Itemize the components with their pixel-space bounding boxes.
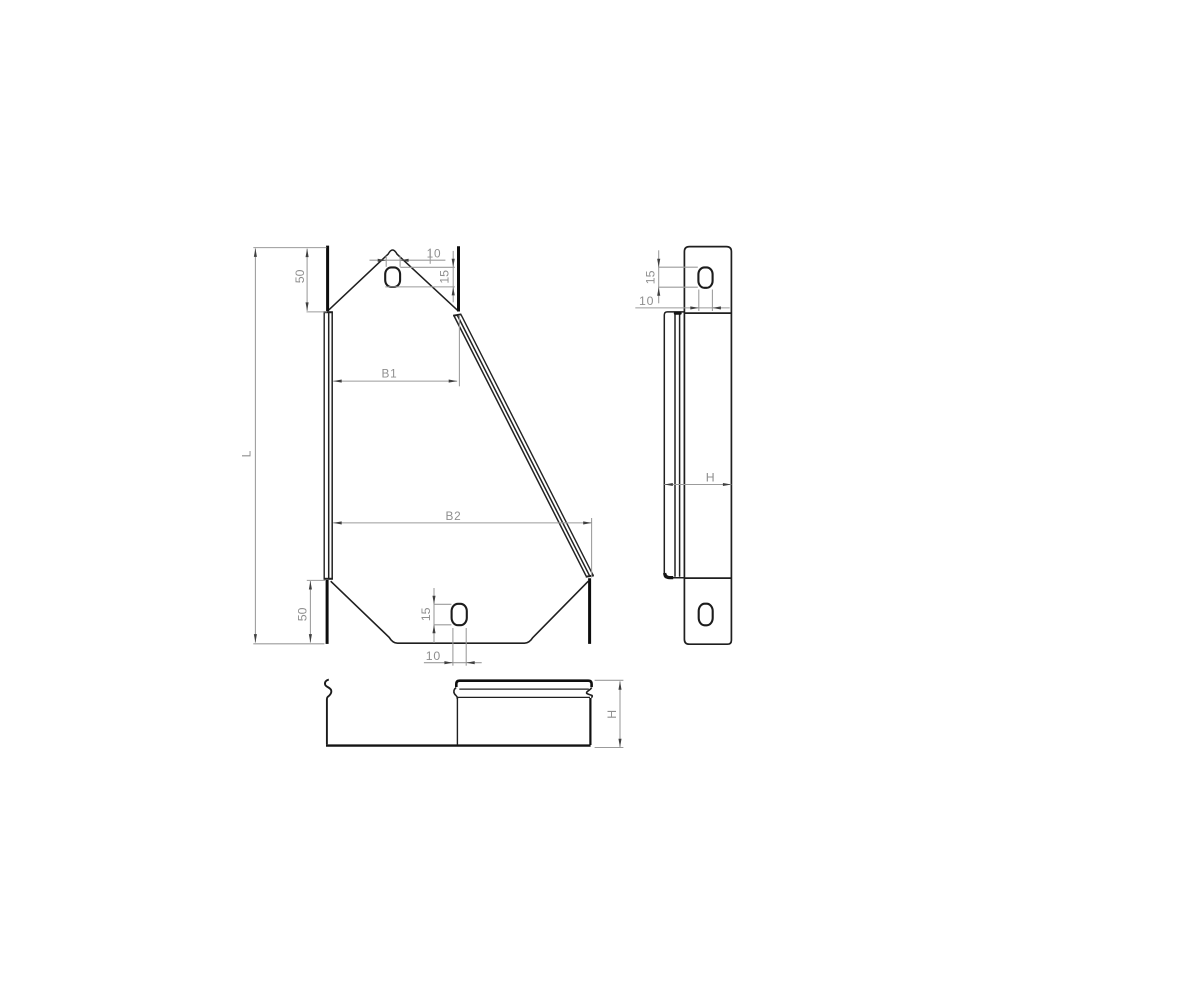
svg-text:50: 50 <box>296 607 310 621</box>
svg-text:15: 15 <box>438 270 452 284</box>
svg-text:15: 15 <box>419 607 433 621</box>
svg-text:H: H <box>706 470 715 484</box>
svg-text:50: 50 <box>293 269 307 283</box>
svg-text:10: 10 <box>639 294 654 308</box>
svg-text:10: 10 <box>426 649 441 663</box>
svg-text:B2: B2 <box>445 509 461 523</box>
svg-text:B1: B1 <box>381 367 397 381</box>
svg-text:15: 15 <box>644 270 658 284</box>
svg-text:10: 10 <box>427 246 442 260</box>
svg-text:H: H <box>605 710 619 719</box>
svg-text:L: L <box>239 450 253 457</box>
